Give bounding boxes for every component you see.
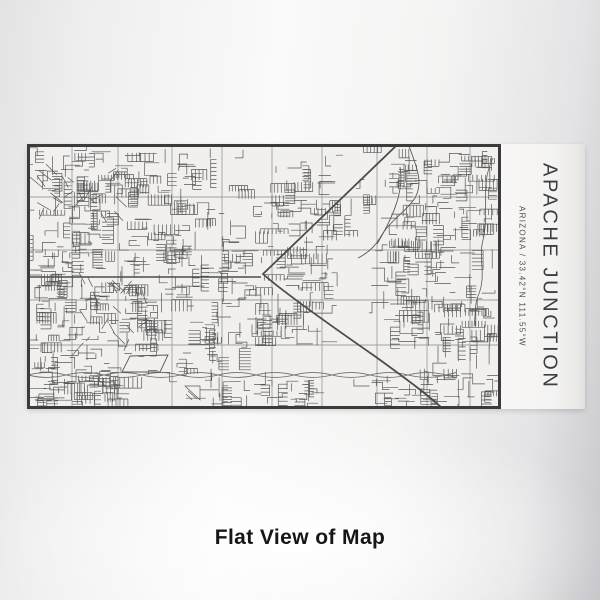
product-mockup-stage: ARIZONA / 33.42°N 111.55°W APACHE JUNCTI… (0, 0, 600, 600)
map-wrap: ARIZONA / 33.42°N 111.55°W APACHE JUNCTI… (27, 144, 585, 409)
label-panel: ARIZONA / 33.42°N 111.55°W APACHE JUNCTI… (501, 144, 585, 409)
map-card (27, 144, 501, 409)
street-map-svg (27, 144, 501, 409)
map-city-title: APACHE JUNCTION (538, 163, 561, 389)
view-caption: Flat View of Map (0, 526, 600, 550)
map-coordinates-label: ARIZONA / 33.42°N 111.55°W (518, 206, 527, 347)
